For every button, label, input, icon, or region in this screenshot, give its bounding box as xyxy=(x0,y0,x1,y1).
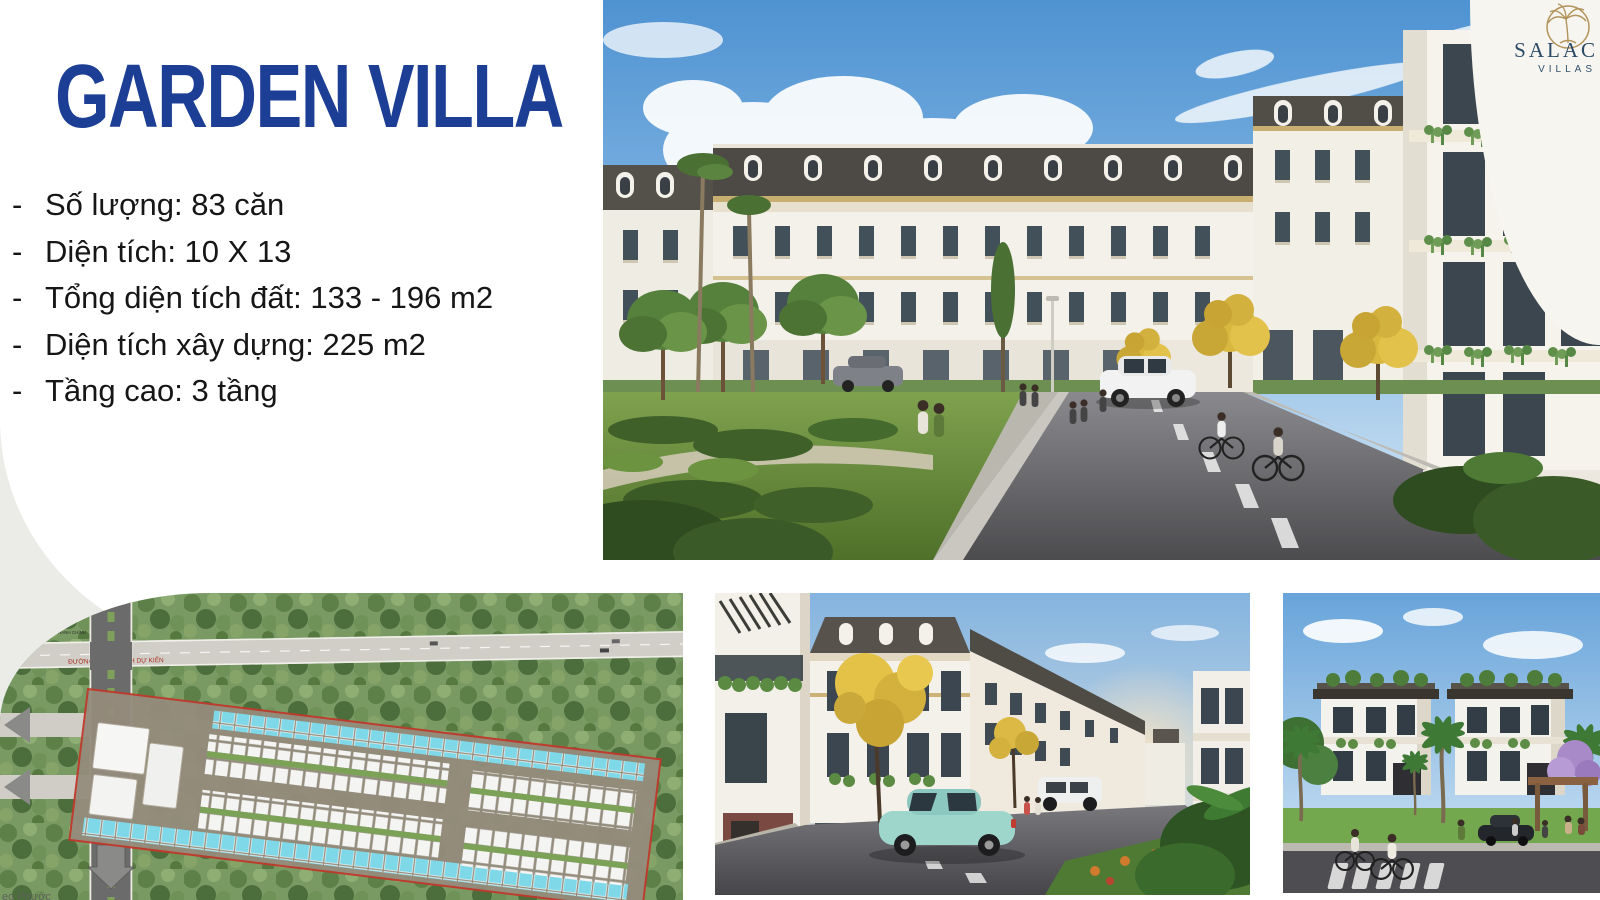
spec-text: Số lượng: 83 căn xyxy=(45,182,284,229)
bullet-dash: - xyxy=(12,322,45,369)
brand-subtitle: VILLAS xyxy=(1538,64,1596,75)
hero-image xyxy=(603,0,1600,560)
villas-photo xyxy=(1283,593,1600,895)
villas-render xyxy=(1283,593,1600,893)
spec-text: Tổng diện tích đất: 133 - 196 m2 xyxy=(45,275,493,322)
spec-list: -Số lượng: 83 căn -Diện tích: 10 X 13 -T… xyxy=(12,182,493,415)
spec-line: -Diện tích xây dựng: 225 m2 xyxy=(12,322,493,369)
page-title: GARDEN VILLA xyxy=(55,46,563,149)
street-photo xyxy=(715,593,1250,895)
spec-text: Diện tích xây dựng: 225 m2 xyxy=(45,322,426,369)
bullet-dash: - xyxy=(12,275,45,322)
spec-text: Tầng cao: 3 tầng xyxy=(45,368,278,415)
bullet-dash: - xyxy=(12,368,45,415)
watermark-fragment: eo Phước xyxy=(2,891,51,900)
spec-line: -Số lượng: 83 căn xyxy=(12,182,493,229)
spec-line: -Tầng cao: 3 tầng xyxy=(12,368,493,415)
spec-line: -Diện tích: 10 X 13 xyxy=(12,229,493,276)
bullet-dash: - xyxy=(12,182,45,229)
brand-name: SALAC xyxy=(1514,38,1598,63)
left-villa-block xyxy=(603,165,713,392)
spec-line: -Tổng diện tích đất: 133 - 196 m2 xyxy=(12,275,493,322)
slide: GARDEN VILLA -Số lượng: 83 căn -Diện tíc… xyxy=(0,0,1600,900)
bullet-dash: - xyxy=(12,229,45,276)
hero-render xyxy=(603,0,1600,560)
siteplan-image: ĐƯỜNG QUY HOẠCH DỰ KIẾN TRUNG TÂM HÀNH C… xyxy=(0,593,683,900)
street-render xyxy=(715,593,1250,895)
siteplan-render: ĐƯỜNG QUY HOẠCH DỰ KIẾN TRUNG TÂM HÀNH C… xyxy=(0,593,683,900)
spec-text: Diện tích: 10 X 13 xyxy=(45,229,291,276)
